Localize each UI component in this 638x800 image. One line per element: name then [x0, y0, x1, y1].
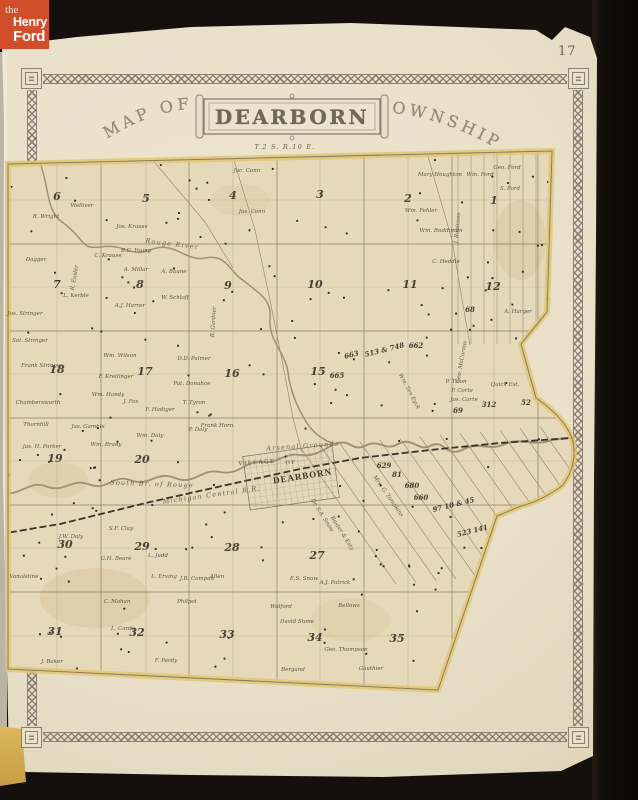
house-symbol: [413, 584, 415, 586]
house-symbol: [90, 467, 92, 469]
house-symbol: [463, 547, 465, 549]
map-label-own: C. Mahan: [104, 599, 131, 605]
map-label-own: Jac. Conn: [233, 168, 261, 174]
map-label-own: Wm. Brady: [91, 442, 123, 448]
house-symbol: [291, 320, 293, 322]
house-symbol: [185, 548, 187, 550]
house-symbol: [109, 417, 111, 419]
house-symbol: [310, 298, 312, 300]
house-symbol: [294, 337, 296, 339]
house-symbol: [208, 199, 210, 201]
house-symbol: [160, 164, 162, 166]
house-symbol: [335, 389, 337, 391]
age-stain: [40, 568, 150, 628]
house-symbol: [538, 438, 540, 440]
house-symbol: [383, 565, 385, 567]
house-symbol: [64, 556, 66, 558]
age-stain: [28, 462, 88, 498]
house-symbol: [214, 666, 216, 668]
house-symbol: [338, 352, 340, 354]
map-label-own: Philpot: [176, 599, 198, 605]
map-label-own: A. Harger: [503, 309, 532, 315]
map-label-sec: 34: [307, 631, 322, 644]
house-symbol: [312, 518, 314, 520]
house-symbol: [54, 272, 56, 274]
house-symbol: [123, 608, 125, 610]
house-symbol: [166, 642, 168, 644]
house-symbol: [120, 648, 122, 650]
house-symbol: [39, 633, 41, 635]
map-label-sec: 29: [133, 540, 150, 553]
henry-ford-logo: the Henry Ford: [0, 0, 49, 49]
map-label-own: Dagger: [25, 257, 47, 263]
map-label-sec: 20: [133, 453, 150, 466]
house-symbol: [27, 332, 29, 334]
house-symbol: [263, 373, 265, 375]
map-label-own: J. Baker: [40, 659, 63, 665]
house-symbol: [99, 479, 101, 481]
house-symbol: [106, 297, 108, 299]
house-symbol: [515, 337, 517, 339]
house-symbol: [106, 219, 108, 221]
map-label-sec: 8: [136, 278, 144, 291]
house-symbol: [91, 327, 93, 329]
house-symbol: [19, 459, 21, 461]
map-label-own: S. Ford: [500, 186, 521, 192]
house-symbol: [380, 564, 382, 566]
house-symbol: [314, 383, 316, 385]
house-symbol: [324, 629, 326, 631]
house-symbol: [223, 299, 225, 301]
map-label-own: Wm. Fehler: [405, 208, 438, 214]
house-symbol: [487, 262, 489, 264]
house-symbol: [74, 200, 76, 202]
map-label-own: Jos. Stringer: [6, 311, 43, 317]
house-symbol: [282, 521, 284, 523]
house-symbol: [434, 159, 436, 161]
house-symbol: [381, 404, 383, 406]
map-label-own: F. Hadiger: [144, 407, 175, 413]
house-symbol: [133, 287, 135, 289]
house-symbol: [492, 229, 494, 231]
map-label-num: 680: [405, 481, 420, 490]
map-label-own: F. Pardy: [154, 658, 178, 664]
house-symbol: [435, 589, 437, 591]
map-label-own: C. Heddle: [432, 259, 460, 265]
house-symbol: [285, 456, 287, 458]
house-symbol: [338, 516, 340, 518]
house-symbol: [177, 218, 179, 220]
map-label-own: Wm. Daly: [137, 433, 165, 439]
house-symbol: [274, 275, 276, 277]
map-label-own: P. Tiron: [445, 379, 467, 385]
house-symbol: [144, 339, 146, 341]
house-symbol: [487, 466, 489, 468]
house-symbol: [93, 467, 95, 469]
map-label-own: S.F. Clay: [109, 526, 134, 532]
map-label-sec: 35: [389, 632, 404, 645]
map-label-own: Mary Houghton: [417, 172, 463, 178]
house-symbol: [388, 361, 390, 363]
map-label-num: 665: [330, 371, 345, 380]
house-symbol: [441, 567, 443, 569]
map-label-num: 68: [465, 305, 475, 314]
house-symbol: [438, 572, 440, 574]
house-symbol: [339, 485, 341, 487]
map-label-sec: 16: [224, 367, 240, 380]
house-symbol: [346, 394, 348, 396]
house-symbol: [200, 236, 202, 238]
house-symbol: [213, 484, 215, 486]
house-symbol: [328, 292, 330, 294]
map-label-own: Vanalstine: [10, 574, 40, 580]
map-label-sec: 12: [485, 280, 501, 293]
map-label-sec: 3: [316, 188, 324, 201]
house-symbol: [353, 578, 355, 580]
map-label-sec: 17: [137, 365, 153, 378]
map-label-sec: 4: [229, 189, 237, 202]
map-label-own: Thornhill: [23, 422, 49, 428]
house-symbol: [491, 277, 493, 279]
map-label-sec: 6: [53, 190, 61, 203]
house-symbol: [249, 364, 251, 366]
house-symbol: [151, 504, 153, 506]
map-label-sec: 1: [490, 194, 498, 207]
house-symbol: [398, 440, 400, 442]
house-symbol: [421, 304, 423, 306]
house-symbol: [30, 230, 32, 232]
title-suffix: TOWNSHIP: [377, 97, 506, 153]
house-symbol: [37, 454, 39, 456]
house-symbol: [224, 511, 226, 513]
house-symbol: [63, 449, 65, 451]
map-label-sec: 28: [223, 541, 240, 554]
house-symbol: [177, 345, 179, 347]
house-symbol: [426, 337, 428, 339]
map-label-own: P. Corte: [450, 388, 473, 394]
map-label-sec: 19: [47, 452, 63, 465]
house-symbol: [59, 393, 61, 395]
house-symbol: [95, 510, 97, 512]
house-symbol: [450, 329, 452, 331]
map-label-num: 81: [392, 470, 402, 479]
map-label-own: B.C. Young: [120, 248, 152, 254]
map-label-own: L. Kerble: [62, 293, 89, 299]
house-symbol: [205, 524, 207, 526]
house-symbol: [416, 610, 418, 612]
house-symbol: [408, 566, 410, 568]
house-symbol: [537, 245, 539, 247]
house-symbol: [76, 668, 78, 670]
map-label-own: Jas. H. Parker: [22, 444, 62, 450]
house-symbol: [100, 331, 102, 333]
house-symbol: [413, 660, 415, 662]
map-label-own: Jos. Conn: [238, 209, 266, 215]
house-symbol: [178, 212, 180, 214]
house-symbol: [224, 658, 226, 660]
map-label-own: Gauthier: [359, 666, 384, 672]
map-label-sec: 31: [47, 625, 62, 638]
house-symbol: [376, 549, 378, 551]
map-label-num: 660: [414, 493, 429, 502]
map-label-own: Bergand: [280, 667, 305, 673]
house-symbol: [92, 507, 94, 509]
house-symbol: [358, 531, 360, 533]
house-symbol: [23, 555, 25, 557]
map-label-sec: 11: [402, 278, 417, 291]
township-map: MAP OF TOWNSHIP DEARBORN: [0, 0, 638, 800]
map-label-sec: 5: [142, 192, 150, 205]
house-symbol: [177, 461, 179, 463]
house-symbol: [305, 428, 307, 430]
map-label-own: G.H. Beare: [101, 556, 132, 562]
house-symbol: [272, 168, 274, 170]
house-symbol: [324, 642, 326, 644]
house-symbol: [428, 313, 430, 315]
house-symbol: [419, 192, 421, 194]
map-label-own: Wm. Handy: [92, 392, 126, 398]
house-symbol: [532, 176, 534, 178]
map-label-own: Welliver: [71, 203, 94, 209]
house-symbol: [442, 287, 444, 289]
house-symbol: [260, 328, 262, 330]
house-symbol: [325, 226, 327, 228]
map-label-num: 69: [453, 406, 463, 415]
house-symbol: [40, 578, 42, 580]
title-prefix: MAP OF: [100, 94, 194, 142]
house-symbol: [82, 430, 84, 432]
map-label-own: Bellows: [337, 603, 360, 609]
map-label-own: Frank Stringer: [20, 363, 63, 369]
map-label-own: A.J. Patrick: [319, 580, 351, 586]
house-symbol: [188, 374, 190, 376]
house-symbol: [346, 232, 348, 234]
map-label-own: W. Schloff: [161, 295, 190, 301]
house-symbol: [296, 220, 298, 222]
house-symbol: [375, 555, 377, 557]
map-label-own: Pat. Donahoe: [172, 381, 211, 387]
house-symbol: [196, 188, 198, 190]
map-label-own: Jas. Gamble: [70, 424, 105, 430]
house-symbol: [225, 243, 227, 245]
map-label-own: Geo. Ford: [493, 165, 521, 171]
house-symbol: [480, 547, 482, 549]
house-symbol: [330, 402, 332, 404]
map-label-sec: 15: [310, 365, 325, 378]
house-symbol: [73, 502, 75, 504]
house-symbol: [121, 276, 123, 278]
house-symbol: [155, 548, 157, 550]
map-label-own: David Stone: [279, 619, 315, 625]
house-symbol: [434, 403, 436, 405]
title-cartouche: DEARBORN: [196, 94, 388, 140]
house-symbol: [450, 516, 452, 518]
map-label-sec: 27: [308, 549, 325, 562]
house-symbol: [38, 542, 40, 544]
house-symbol: [117, 633, 119, 635]
house-symbol: [127, 281, 129, 283]
house-symbol: [51, 513, 53, 515]
house-symbol: [268, 265, 270, 267]
house-symbol: [197, 411, 199, 413]
map-label-own: Wolford: [270, 604, 292, 610]
map-label-own: Quick Est.: [491, 382, 520, 388]
map-label-num: 312: [482, 400, 497, 409]
house-symbol: [361, 594, 363, 596]
house-symbol: [519, 231, 521, 233]
house-symbol: [128, 651, 130, 653]
map-label-own: Jos. Krause: [115, 224, 148, 230]
map-label-own: A. Millar: [123, 267, 149, 273]
map-label-num: 52: [521, 398, 531, 407]
house-symbol: [206, 182, 208, 184]
house-symbol: [387, 289, 389, 291]
map-label-own: Sol. Stringer: [12, 338, 48, 344]
house-symbol: [261, 546, 263, 548]
house-symbol: [511, 304, 513, 306]
house-symbol: [191, 547, 193, 549]
map-label-sec: 33: [219, 628, 235, 641]
house-symbol: [446, 438, 448, 440]
map-label-own: Wm. Wilson: [103, 353, 137, 359]
house-symbol: [56, 568, 58, 570]
map-label-sec: 9: [224, 279, 232, 292]
claim-lot-line: [540, 427, 636, 564]
map-label-own: Frank Horn: [200, 423, 234, 429]
house-symbol: [134, 312, 136, 314]
house-symbol: [363, 500, 365, 502]
house-symbol: [541, 244, 543, 246]
map-label-num: 629: [377, 461, 392, 470]
house-symbol: [152, 300, 154, 302]
map-label-own: A.J. Harrer: [114, 303, 146, 309]
map-label-own: E.S. Snow: [289, 576, 318, 582]
house-symbol: [467, 276, 469, 278]
map-label-own: L. Carde: [110, 626, 136, 632]
map-label-own: J.W. Daly: [58, 534, 84, 540]
map-label-sec: 2: [403, 192, 412, 205]
map-label-own: R. Wright: [32, 214, 60, 220]
map-label-own: C. Krause: [94, 253, 122, 259]
map-label-own: L. Judd: [147, 553, 168, 559]
map-label-own: Jos. Corte: [449, 397, 478, 403]
map-label-own: Wm. Ford: [466, 172, 494, 178]
map-label-own: Geo. Thompson: [324, 647, 368, 653]
map-label-own: J. Fox: [122, 399, 139, 405]
map-label-own: F. Kreilinger: [98, 374, 134, 380]
title-name: DEARBORN: [215, 105, 369, 129]
house-symbol: [507, 182, 509, 184]
house-symbol: [426, 355, 428, 357]
map-label-own: T. Tyron: [183, 400, 206, 406]
house-symbol: [249, 229, 251, 231]
map-label-own: L. Erving: [150, 574, 177, 580]
map-label-vils: OF: [285, 460, 296, 467]
house-symbol: [211, 536, 213, 538]
house-symbol: [461, 201, 463, 203]
house-symbol: [473, 325, 475, 327]
house-symbol: [65, 177, 67, 179]
house-symbol: [412, 506, 414, 508]
house-symbol: [189, 179, 191, 181]
map-label-feat: T.2 S. R.10 E.: [255, 143, 316, 151]
photographed-atlas-page: 17 MAP OF TOWNSHIP: [0, 0, 638, 800]
house-symbol: [490, 319, 492, 321]
house-symbol: [151, 440, 153, 442]
map-label-num: 662: [409, 341, 424, 350]
map-label-own: Allen: [209, 574, 225, 580]
map-label-sec: 10: [307, 278, 323, 291]
house-symbol: [68, 581, 70, 583]
house-symbol: [455, 313, 457, 315]
logo-henry: Henry: [13, 16, 47, 29]
house-symbol: [343, 297, 345, 299]
house-symbol: [262, 559, 264, 561]
house-symbol: [432, 410, 434, 412]
house-symbol: [522, 271, 524, 273]
house-symbol: [165, 222, 167, 224]
house-symbol: [469, 329, 471, 331]
house-symbol: [210, 413, 212, 415]
map-label-own: Chambersworth: [16, 400, 61, 406]
map-label-own: D.D. Palmer: [176, 356, 211, 362]
map-label-sec: 7: [53, 278, 61, 291]
map-label-own: A. Baune: [160, 269, 187, 275]
logo-ford: Ford: [13, 29, 45, 44]
house-symbol: [365, 653, 367, 655]
house-symbol: [416, 219, 418, 221]
